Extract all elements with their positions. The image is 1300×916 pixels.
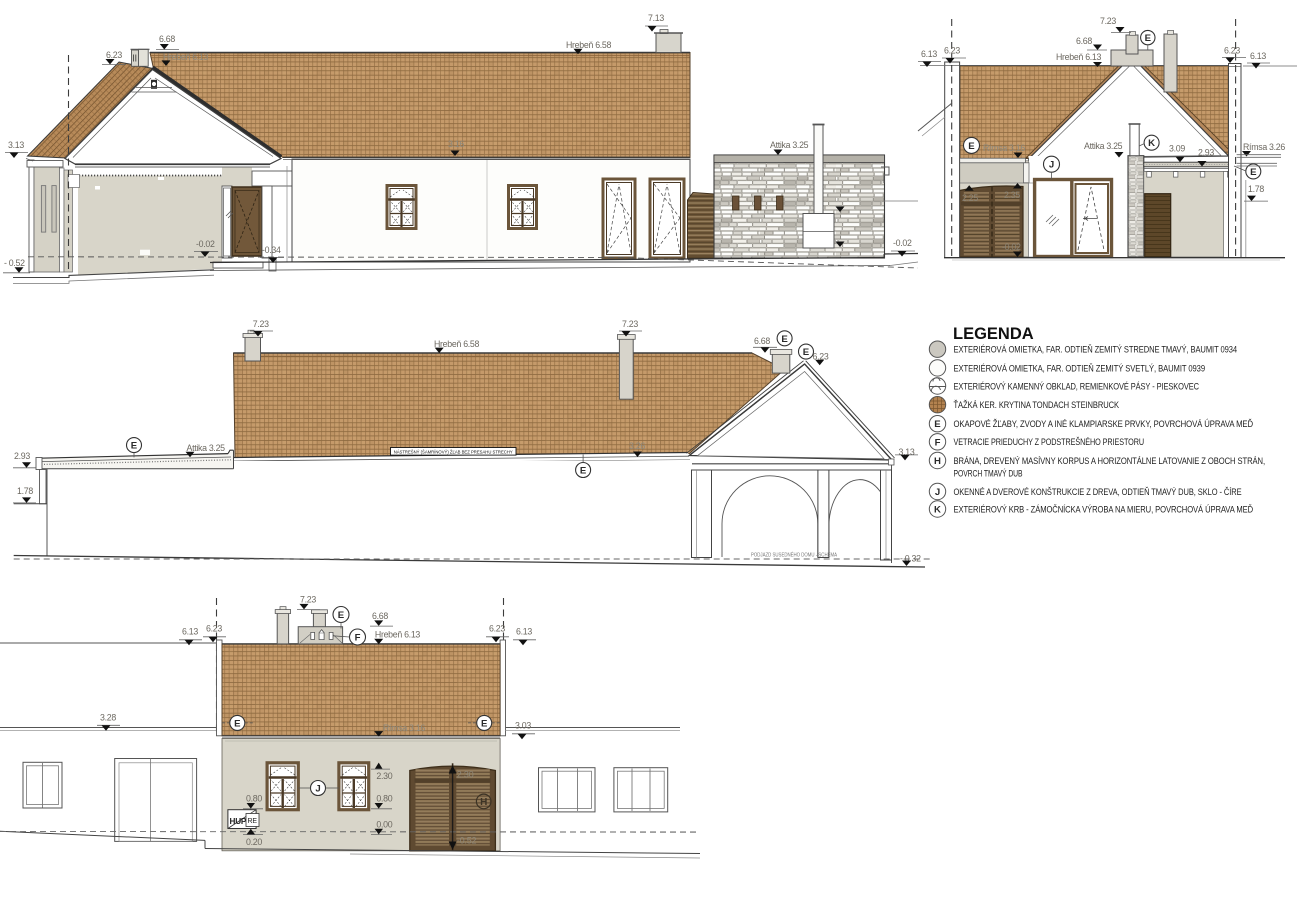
svg-text:6.68: 6.68 (754, 336, 770, 346)
svg-text:7.23: 7.23 (300, 595, 316, 605)
svg-text:1.78: 1.78 (1248, 184, 1264, 194)
svg-text:E: E (338, 610, 345, 621)
svg-text:3.03: 3.03 (515, 721, 531, 731)
svg-text:E: E (131, 441, 138, 452)
svg-text:Rímsa 3.16: Rímsa 3.16 (983, 143, 1025, 153)
svg-text:Hrebeň 6.58: Hrebeň 6.58 (434, 339, 480, 349)
svg-text:- 0.32: - 0.32 (900, 554, 921, 564)
svg-text:2.30: 2.30 (376, 771, 392, 781)
svg-text:2.93: 2.93 (1198, 148, 1214, 158)
svg-text:E: E (1250, 167, 1257, 178)
svg-text:E: E (234, 718, 241, 729)
svg-text:0.00: 0.00 (376, 820, 392, 830)
svg-text:E: E (968, 141, 975, 152)
svg-text:K: K (934, 505, 941, 516)
svg-text:Hrebeň 6.13: Hrebeň 6.13 (375, 630, 421, 640)
svg-text:3.16: 3.16 (448, 139, 464, 149)
svg-text:-0.52: -0.52 (457, 836, 477, 846)
svg-text:K: K (1148, 138, 1155, 149)
svg-text:E: E (1145, 33, 1152, 44)
svg-text:6.13: 6.13 (516, 627, 532, 637)
svg-text:-0.34: -0.34 (262, 245, 281, 255)
svg-text:OKAPOVÉ ŽĽABY, ZVODY A INÉ KLA: OKAPOVÉ ŽĽABY, ZVODY A INÉ KLAMPIARSKE P… (954, 418, 1254, 429)
svg-text:F: F (935, 437, 941, 448)
svg-text:PODJAZD SUSEDNÉHO DOMU - SCHÉM: PODJAZD SUSEDNÉHO DOMU - SCHÉMA (751, 552, 837, 559)
svg-text:7.23: 7.23 (622, 319, 638, 329)
svg-text:BRÁNA, DREVENÝ MASÍVNY KORPUS: BRÁNA, DREVENÝ MASÍVNY KORPUS A HORIZONT… (954, 455, 1266, 466)
svg-text:Rímsa 3.26: Rímsa 3.26 (1243, 142, 1285, 152)
svg-text:6.68: 6.68 (372, 611, 388, 621)
svg-text:3.13: 3.13 (8, 140, 24, 150)
svg-text:OKENNÉ A DVEROVÉ KONŠTRUKCIE Z: OKENNÉ A DVEROVÉ KONŠTRUKCIE Z DREVA, OD… (954, 486, 1242, 497)
svg-text:Attika 3.25: Attika 3.25 (770, 140, 809, 150)
svg-text:EXTERIÉROVÝ KAMENNÝ OBKLAD, RE: EXTERIÉROVÝ KAMENNÝ OBKLAD, REMIENKOVÉ P… (954, 380, 1200, 391)
svg-text:Rímsa 3.16: Rímsa 3.16 (383, 723, 425, 733)
svg-text:RE: RE (248, 818, 258, 825)
svg-text:J: J (315, 784, 320, 795)
svg-text:Attika 3.25: Attika 3.25 (187, 443, 226, 453)
svg-text:ŤAŽKÁ KER. KRYTINA TONDACH STE: ŤAŽKÁ KER. KRYTINA TONDACH STEINBRUCK (954, 399, 1120, 410)
svg-text:7.13: 7.13 (648, 13, 664, 23)
svg-text:0.80: 0.80 (376, 794, 392, 804)
svg-text:7.23: 7.23 (1100, 16, 1116, 26)
svg-text:6.13: 6.13 (1250, 51, 1266, 61)
svg-text:E: E (481, 718, 488, 729)
svg-text:Hrebeň 6.13: Hrebeň 6.13 (1056, 52, 1102, 62)
svg-text:6.23: 6.23 (1224, 46, 1240, 56)
svg-text:EXTERIÉROVÁ OMIETKA, FAR. ODTI: EXTERIÉROVÁ OMIETKA, FAR. ODTIEŇ ZEMITÝ … (954, 344, 1238, 355)
svg-text:-0.02: -0.02 (893, 238, 912, 248)
svg-text:E: E (781, 334, 788, 345)
svg-text:6.23: 6.23 (489, 624, 505, 634)
svg-text:VETRACIE PRIEDUCHY Z PODSTREŠN: VETRACIE PRIEDUCHY Z PODSTREŠNÉHO PRIEST… (954, 436, 1145, 447)
svg-text:F: F (355, 633, 361, 644)
svg-text:-0.02: -0.02 (196, 239, 215, 249)
svg-text:6.13: 6.13 (921, 49, 937, 59)
svg-text:2.30: 2.30 (457, 770, 474, 780)
svg-text:J: J (935, 487, 940, 498)
svg-text:- 0.52: - 0.52 (4, 258, 25, 268)
svg-text:HUP: HUP (230, 817, 247, 826)
svg-text:0.20: 0.20 (246, 837, 262, 847)
svg-text:6.23: 6.23 (206, 624, 222, 634)
svg-text:7.23: 7.23 (253, 319, 269, 329)
svg-text:1.78: 1.78 (17, 486, 33, 496)
svg-text:POVRCH TMAVÝ DUB: POVRCH TMAVÝ DUB (954, 467, 1023, 478)
svg-text:3.28: 3.28 (100, 713, 116, 723)
svg-text:3.26: 3.26 (629, 441, 645, 451)
svg-text:6.68: 6.68 (159, 34, 175, 44)
svg-text:EXTERIÉROVÁ OMIETKA, FAR. ODTI: EXTERIÉROVÁ OMIETKA, FAR. ODTIEŇ ZEMITÝ … (954, 362, 1206, 373)
svg-text:2.93: 2.93 (14, 451, 30, 461)
svg-text:0.80: 0.80 (246, 794, 262, 804)
svg-text:2.35: 2.35 (1004, 190, 1020, 200)
svg-text:E: E (803, 347, 810, 358)
svg-text:H: H (480, 797, 487, 808)
svg-text:E: E (934, 419, 941, 430)
svg-text:H: H (934, 456, 941, 467)
svg-text:E: E (580, 466, 587, 477)
svg-text:Hrebeň 6.58: Hrebeň 6.58 (566, 40, 612, 50)
svg-text:Attika 3.25: Attika 3.25 (1084, 141, 1123, 151)
svg-text:3.09: 3.09 (1169, 144, 1185, 154)
svg-text:6.23: 6.23 (106, 50, 122, 60)
svg-text:6.23: 6.23 (944, 46, 960, 56)
svg-text:EXTERIÉROVÝ KRB - ZÁMOČNÍCKA V: EXTERIÉROVÝ KRB - ZÁMOČNÍCKA VÝROBA NA M… (954, 503, 1254, 514)
svg-text:-0.02: -0.02 (1002, 242, 1021, 252)
svg-text:J: J (1049, 160, 1054, 171)
svg-text:6.13: 6.13 (182, 627, 198, 637)
svg-text:LEGENDA: LEGENDA (953, 325, 1034, 343)
svg-text:6.68: 6.68 (1076, 36, 1092, 46)
svg-text:2.25: 2.25 (962, 193, 978, 203)
